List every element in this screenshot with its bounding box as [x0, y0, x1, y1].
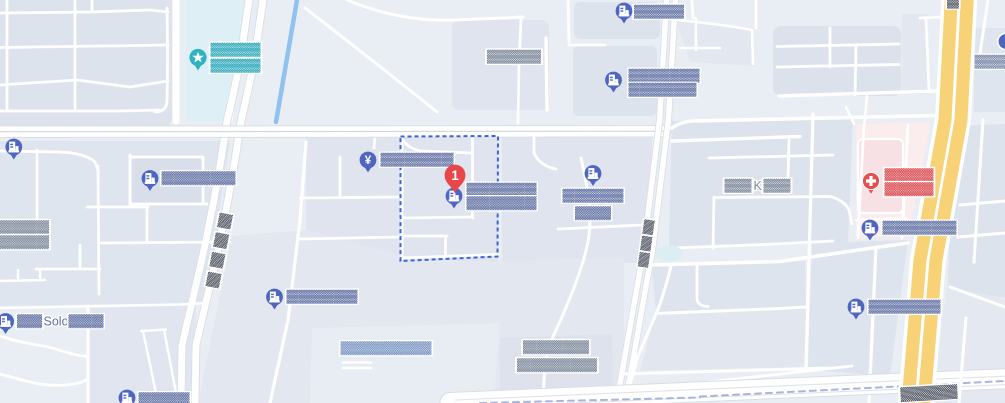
- svg-text:▓▓▓▓▓▓: ▓▓▓▓▓▓: [517, 358, 598, 373]
- svg-text:▓▓▓▓▓: ▓▓▓▓▓: [523, 340, 590, 355]
- svg-text:¥: ¥: [365, 155, 372, 167]
- svg-text:▓▓▓▓▓▓: ▓▓▓▓▓▓: [869, 299, 942, 314]
- svg-text:▓▓▓▓: ▓▓▓▓: [139, 392, 191, 403]
- svg-text:▓▓: ▓▓: [17, 313, 43, 328]
- svg-text:▓▓▓▓▓▓: ▓▓▓▓▓▓: [629, 82, 698, 97]
- svg-text:▓▓▓: ▓▓▓: [575, 205, 612, 220]
- svg-text:▓▓: ▓▓: [764, 178, 792, 193]
- svg-text:▓▓▓▓: ▓▓▓▓: [975, 54, 1005, 69]
- svg-text:▓▓▓▓: ▓▓▓▓: [487, 49, 542, 64]
- svg-text:▓▓▓▓: ▓▓▓▓: [0, 234, 50, 249]
- svg-text:▓▓▓: ▓▓▓: [69, 313, 105, 328]
- svg-text:1: 1: [451, 168, 459, 183]
- svg-text:▓▓▓▓▓▓: ▓▓▓▓▓▓: [287, 289, 359, 304]
- svg-text:K: K: [754, 179, 763, 193]
- svg-text:▓▓▓▓▓▓▓: ▓▓▓▓▓▓▓: [341, 341, 433, 356]
- svg-text:▓▓▓▓: ▓▓▓▓: [211, 42, 262, 57]
- svg-text:▓▓▓▓: ▓▓▓▓: [885, 167, 935, 182]
- svg-text:▓▓▓▓: ▓▓▓▓: [211, 58, 262, 73]
- svg-text:▓▓▓▓: ▓▓▓▓: [885, 181, 935, 196]
- svg-text:▓▓▓▓▓▓: ▓▓▓▓▓▓: [883, 220, 958, 235]
- svg-text:▓▓▓▓▓▓▓: ▓▓▓▓▓▓▓: [629, 68, 701, 83]
- svg-text:▓▓▓▓▓: ▓▓▓▓▓: [563, 188, 625, 203]
- svg-text:Solo: Solo: [44, 315, 69, 329]
- svg-text:▓▓▓▓▓▓: ▓▓▓▓▓▓: [381, 152, 455, 167]
- svg-text:▓▓▓▓: ▓▓▓▓: [0, 219, 50, 234]
- svg-text:▓: ▓: [947, 0, 960, 9]
- svg-text:▓▓: ▓▓: [725, 178, 753, 193]
- svg-text:▓▓▓▓▓▓: ▓▓▓▓▓▓: [162, 170, 237, 185]
- svg-text:▓▓▓▓: ▓▓▓▓: [634, 4, 685, 19]
- svg-text:▓▓▓▓▓▓: ▓▓▓▓▓▓: [467, 195, 538, 210]
